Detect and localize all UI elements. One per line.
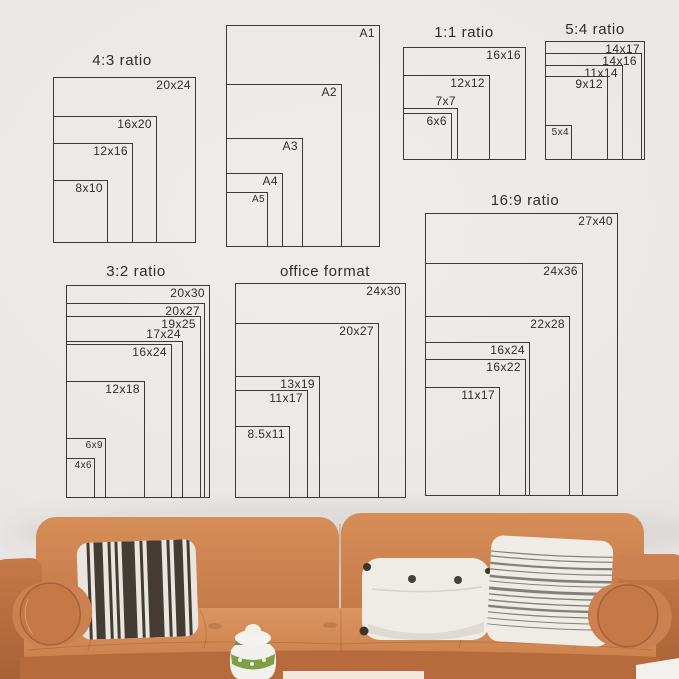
pillow-striped-bw bbox=[76, 539, 198, 640]
size-label-12x18: 12x18 bbox=[105, 383, 140, 396]
pillow-button bbox=[454, 576, 462, 584]
size-label-7x7: 7x7 bbox=[435, 95, 456, 108]
pillow-pompom bbox=[363, 563, 371, 571]
size-label-6x6: 6x6 bbox=[426, 115, 447, 128]
size-label-12x16: 12x16 bbox=[93, 145, 128, 158]
size-label-22x28: 22x28 bbox=[530, 318, 565, 331]
pillow-button bbox=[408, 575, 416, 583]
pillow-pompom bbox=[360, 627, 369, 636]
size-label-16x22: 16x22 bbox=[486, 361, 521, 374]
sofa-armrest-right bbox=[612, 554, 679, 580]
size-rect-A5: A5 bbox=[226, 192, 268, 247]
group-title-1-1: 1:1 ratio bbox=[434, 24, 494, 41]
size-label-8x10: 8x10 bbox=[75, 182, 103, 195]
size-label-12x12: 12x12 bbox=[450, 77, 485, 90]
size-label-6x9: 6x9 bbox=[86, 440, 103, 451]
size-label-20x27: 20x27 bbox=[339, 325, 374, 338]
size-label-16x24: 16x24 bbox=[132, 346, 167, 359]
size-label-A3: A3 bbox=[283, 140, 298, 153]
size-label-5x4: 5x4 bbox=[552, 127, 569, 138]
pillow-white-lumbar bbox=[360, 558, 492, 640]
size-label-11x17: 11x17 bbox=[461, 389, 495, 402]
size-label-27x40: 27x40 bbox=[578, 215, 613, 228]
sofa-photo bbox=[0, 492, 679, 679]
size-label-A2: A2 bbox=[322, 86, 337, 99]
size-label-16x20: 16x20 bbox=[117, 118, 152, 131]
size-label-A1: A1 bbox=[360, 27, 375, 40]
size-label-17x24: 17x24 bbox=[146, 328, 181, 341]
group-title-3-2: 3:2 ratio bbox=[106, 263, 166, 280]
size-label-20x24: 20x24 bbox=[156, 79, 191, 92]
table-edge bbox=[283, 671, 424, 679]
size-label-4x6: 4x6 bbox=[75, 460, 92, 471]
size-rect-11x17: 11x17 bbox=[425, 387, 500, 496]
size-label-16x24: 16x24 bbox=[490, 344, 525, 357]
size-label-24x30: 24x30 bbox=[366, 285, 401, 298]
size-rect-8.5x11: 8.5x11 bbox=[235, 426, 290, 498]
size-label-16x16: 16x16 bbox=[486, 49, 521, 62]
size-rect-6x6: 6x6 bbox=[403, 113, 452, 160]
size-label-A4: A4 bbox=[263, 175, 278, 188]
group-title-16-9: 16:9 ratio bbox=[491, 192, 560, 209]
group-title-4-3: 4:3 ratio bbox=[92, 52, 152, 69]
size-label-9x12: 9x12 bbox=[575, 78, 603, 91]
size-label-20x30: 20x30 bbox=[170, 287, 205, 300]
size-label-11x17: 11x17 bbox=[269, 392, 303, 405]
size-label-A5: A5 bbox=[252, 194, 265, 205]
wall-scene: 4:3 ratio20x2416x2012x168x10A1A2A3A4A51:… bbox=[0, 0, 679, 679]
size-label-8.5x11: 8.5x11 bbox=[247, 428, 285, 441]
size-label-24x36: 24x36 bbox=[543, 265, 578, 278]
size-rect-5x4: 5x4 bbox=[545, 125, 572, 160]
group-title-5-4: 5:4 ratio bbox=[565, 21, 625, 38]
group-title-office: office format bbox=[280, 263, 370, 280]
size-rect-8x10: 8x10 bbox=[53, 180, 108, 243]
